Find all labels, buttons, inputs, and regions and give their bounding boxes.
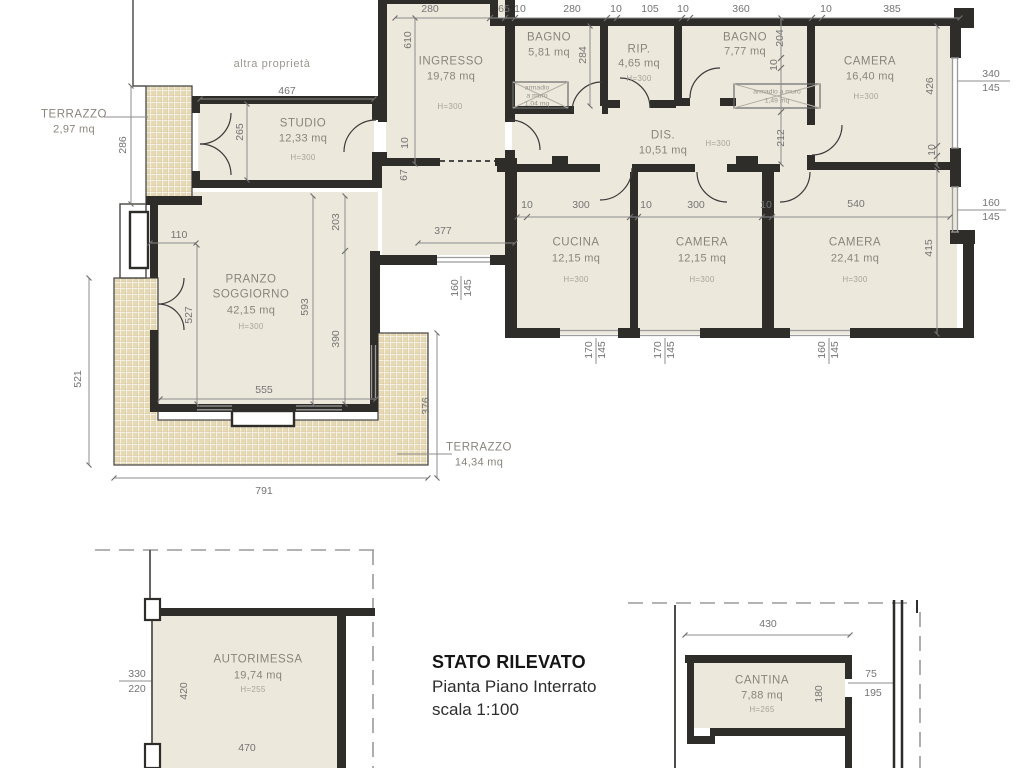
floor-plan-drawing (0, 0, 1024, 768)
rooms-fill-layer (152, 0, 957, 408)
lower-plan (95, 550, 920, 768)
floor-plan-page: altra proprietà STATO RILEVATO Pianta Pi… (0, 0, 1024, 768)
